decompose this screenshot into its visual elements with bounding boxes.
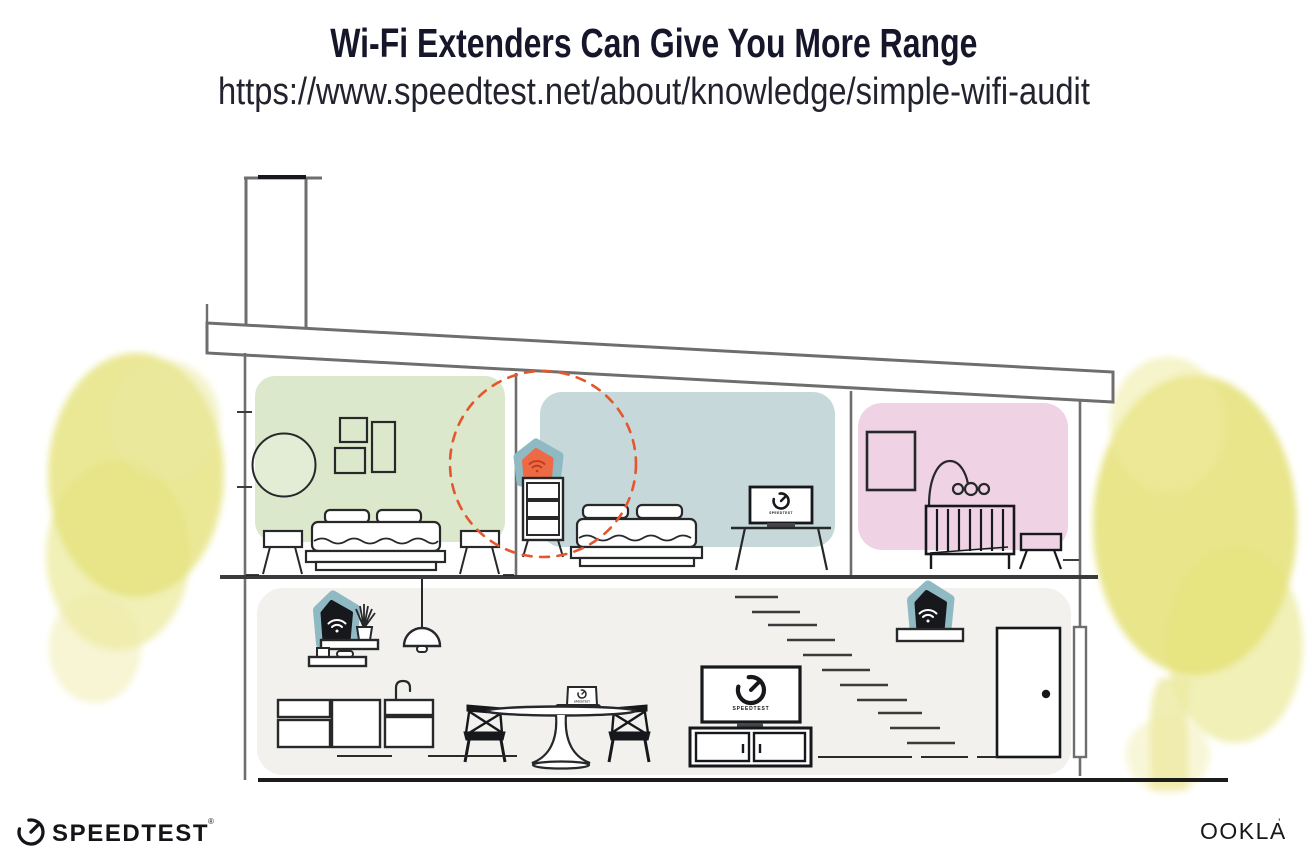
kitchen-cabinet: [332, 700, 380, 747]
kitchen-cabinet: [385, 717, 433, 747]
bed-platform: [306, 551, 445, 562]
bed-base: [580, 558, 694, 566]
nightstand: [263, 531, 302, 574]
speedtest-logo: SPEEDTEST ®: [12, 810, 252, 859]
wifi-router: [318, 595, 357, 644]
entry-door: [997, 628, 1060, 757]
house-illustration: SPEEDTEST: [0, 0, 1308, 861]
chair-seat: [609, 732, 650, 740]
speedtest-trademark: ®: [208, 817, 214, 826]
tv-stand: [737, 723, 763, 727]
downspout: [1074, 627, 1086, 757]
ookla-wordmark: OOKLA: [1200, 818, 1287, 844]
table-base: [533, 762, 589, 769]
tv-stand: [767, 523, 795, 527]
bed-platform: [571, 547, 702, 558]
chair-seat: [464, 732, 505, 740]
tv-label: SPEEDTEST: [733, 706, 770, 712]
foliage-right: [1093, 357, 1303, 793]
infographic-canvas: Wi-Fi Extenders Can Give You More Range …: [0, 0, 1308, 861]
speedtest-gauge-icon: [19, 820, 43, 844]
bed: [571, 505, 702, 566]
door-knob: [1042, 690, 1050, 698]
laptop-label: SPEEDTEST: [574, 701, 590, 704]
bed-mattress: [312, 522, 440, 551]
speedtest-wordmark: SPEEDTEST: [52, 820, 209, 847]
ookla-trademark: ’: [1278, 817, 1280, 829]
bed-base: [316, 562, 436, 570]
wall-shelf: [309, 657, 366, 666]
foliage-left: [46, 353, 224, 703]
lamp-bulb: [417, 646, 427, 652]
round-mirror: [253, 434, 316, 497]
tv-label: SPEEDTEST: [769, 511, 793, 515]
ookla-logo: OOKLA ’: [1198, 812, 1304, 853]
table-top: [487, 707, 635, 716]
stool: [1020, 534, 1061, 569]
kitchen-drawer: [278, 700, 330, 717]
living-room-tv-area: SPEEDTEST: [690, 667, 811, 766]
media-console: [690, 728, 811, 766]
kitchen-drawer: [278, 720, 330, 747]
wall-shelf: [897, 629, 963, 641]
wifi-extender-upstairs: [518, 443, 559, 482]
bed-mattress: [577, 519, 696, 547]
shelf-cup: [317, 648, 329, 657]
nightstand: [460, 531, 499, 574]
kitchen-drawer: [385, 700, 433, 715]
bed-pillow: [637, 505, 682, 518]
chimney: [246, 178, 306, 335]
plant-pot: [357, 627, 372, 640]
nursery-wall: [858, 403, 1068, 550]
